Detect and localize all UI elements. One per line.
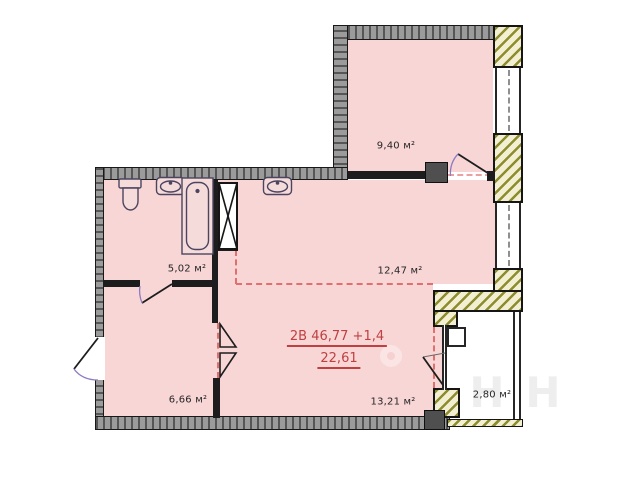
wall-top-bathroom [95,167,348,180]
area-label-balcony: 2,80 м² [473,390,511,401]
wall-block-bottom [424,410,445,430]
wall-block-doorway [425,162,448,183]
area-label-living-room: 13,21 м² [371,397,416,408]
room-top-floor [348,38,493,172]
area-label-bathroom: 5,02 м² [168,264,206,275]
balcony-window [447,327,466,347]
wall-left-main [95,167,104,430]
vent-shaft [218,182,238,250]
door-dash-room-top [448,174,491,176]
zone-dash-horizontal [236,283,433,285]
area-label-room-left: 6,66 м² [169,395,207,406]
area-label-room-top: 9,40 м² [377,141,415,152]
wall-top-room [333,25,497,40]
area-label-hall-kitchen: 12,47 м² [378,266,423,277]
entrance-opening [94,337,105,380]
wall-roomtop-hall [348,171,425,179]
balcony-bottom-parapet [447,419,523,427]
watermark-letter: Н [525,368,560,417]
door-jamb-right [487,171,495,181]
unit-summary-line1: 2В 46,77 +1,4 [287,329,387,347]
unit-summary-line2: 22,61 [317,351,360,369]
wall-bottom-main [95,416,450,430]
bath-hall-floor [103,180,495,284]
wall-roomleft-living [213,378,220,418]
floor-plan: Н Н [0,0,640,480]
zone-dash-vertical-shaft [235,250,237,284]
window-mullion [508,205,510,266]
wall-bathroom-south-right [172,280,213,287]
zone-dash-balcony-door [433,327,435,388]
balcony-glazing [513,312,521,419]
window-mullion [508,70,510,131]
balcony-top-wall [433,290,523,312]
pier-right-2 [493,133,523,203]
pier-right-1 [493,25,523,68]
wall-left-room-top [333,25,348,180]
wall-bathroom-south-left [103,280,140,287]
zone-dash-double-door [217,323,219,378]
window-right-2 [495,203,521,268]
pier-right-3 [493,268,523,292]
window-right-1 [495,68,521,133]
